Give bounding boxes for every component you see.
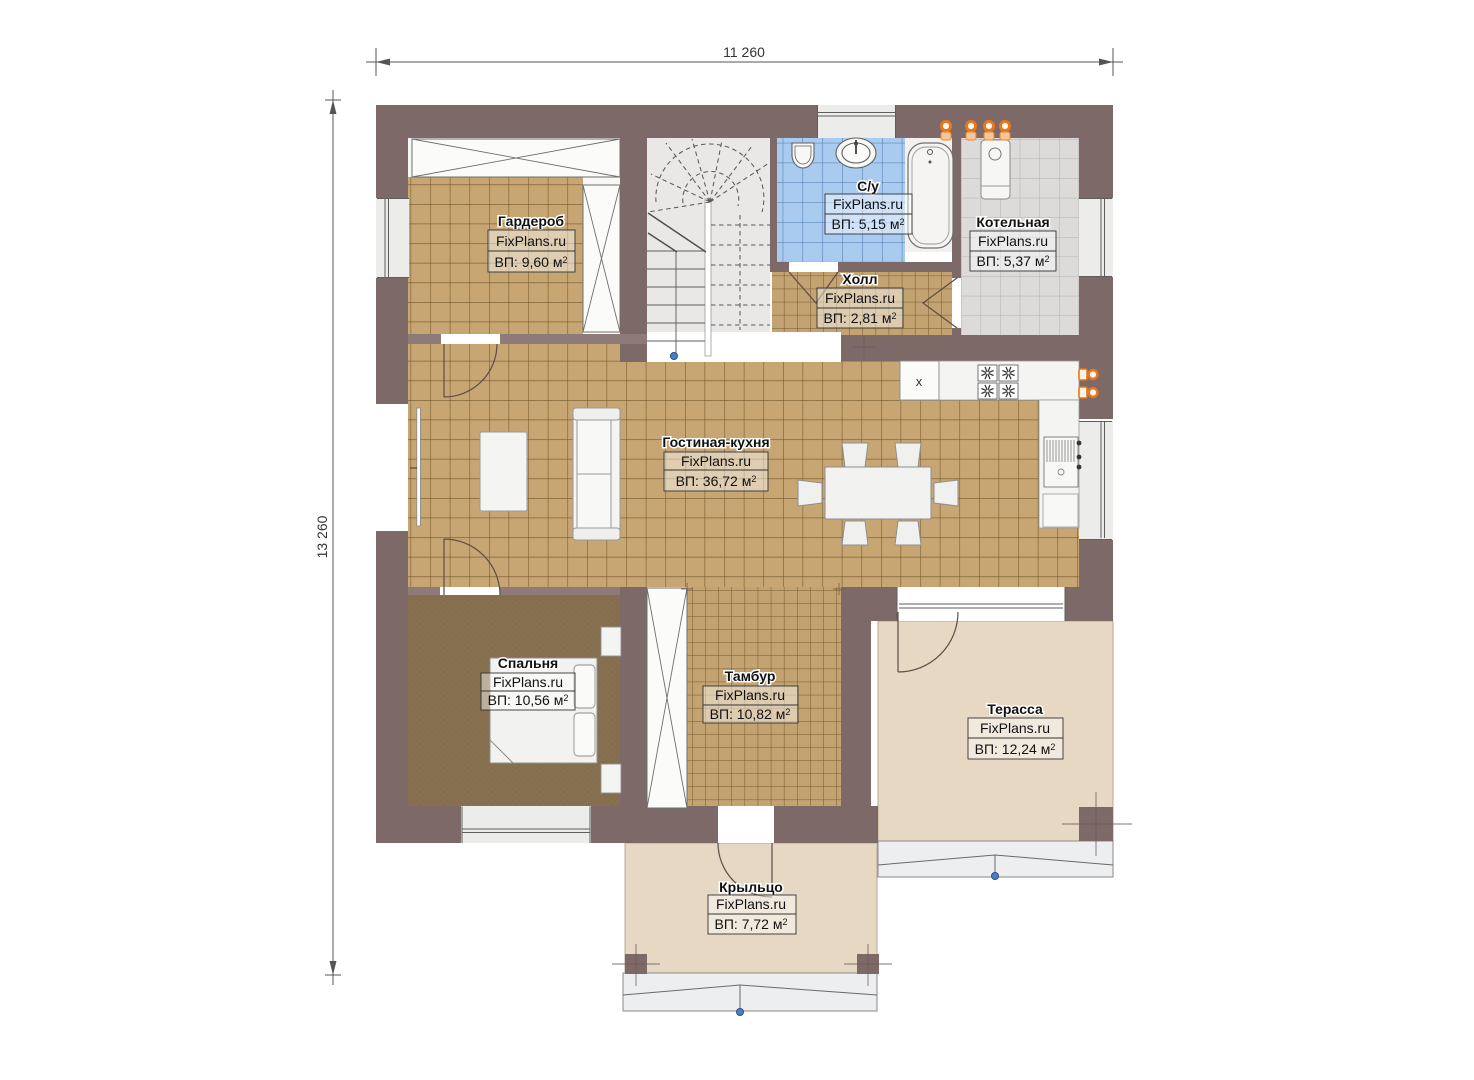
svg-text:Гардероб: Гардероб: [498, 213, 565, 229]
svg-text:ВП: 10,56 м2: ВП: 10,56 м2: [488, 692, 569, 708]
svg-text:С/у: С/у: [857, 178, 879, 194]
svg-text:13 260: 13 260: [314, 515, 330, 558]
svg-text:Тамбур: Тамбур: [725, 668, 776, 684]
svg-text:Котельная: Котельная: [976, 214, 1049, 230]
svg-text:FixPlans.ru: FixPlans.ru: [496, 233, 566, 249]
svg-text:ВП: 5,37 м2: ВП: 5,37 м2: [977, 253, 1050, 269]
svg-text:Спальня: Спальня: [498, 655, 558, 671]
svg-text:Гостиная-кухня: Гостиная-кухня: [662, 434, 769, 450]
svg-text:FixPlans.ru: FixPlans.ru: [833, 196, 903, 212]
svg-text:FixPlans.ru: FixPlans.ru: [980, 720, 1050, 736]
svg-text:ВП: 12,24 м2: ВП: 12,24 м2: [975, 741, 1056, 757]
svg-text:FixPlans.ru: FixPlans.ru: [715, 687, 785, 703]
svg-text:11 260: 11 260: [723, 44, 765, 60]
svg-text:Крыльцо: Крыльцо: [719, 879, 783, 895]
svg-text:ВП: 36,72 м2: ВП: 36,72 м2: [676, 473, 757, 489]
svg-text:ВП: 5,15 м2: ВП: 5,15 м2: [832, 216, 905, 232]
svg-text:ВП: 2,81 м2: ВП: 2,81 м2: [824, 310, 897, 326]
svg-text:FixPlans.ru: FixPlans.ru: [681, 453, 751, 469]
svg-text:FixPlans.ru: FixPlans.ru: [825, 290, 895, 306]
svg-text:FixPlans.ru: FixPlans.ru: [978, 233, 1048, 249]
svg-text:FixPlans.ru: FixPlans.ru: [493, 674, 563, 690]
svg-text:ВП: 9,60 м2: ВП: 9,60 м2: [495, 254, 568, 270]
svg-text:Холл: Холл: [842, 271, 877, 287]
svg-text:ВП: 7,72 м2: ВП: 7,72 м2: [715, 916, 788, 932]
svg-text:ВП: 10,82 м2: ВП: 10,82 м2: [710, 706, 791, 722]
svg-text:x: x: [916, 374, 923, 389]
svg-text:FixPlans.ru: FixPlans.ru: [716, 896, 786, 912]
svg-text:Терасса: Терасса: [987, 701, 1043, 717]
